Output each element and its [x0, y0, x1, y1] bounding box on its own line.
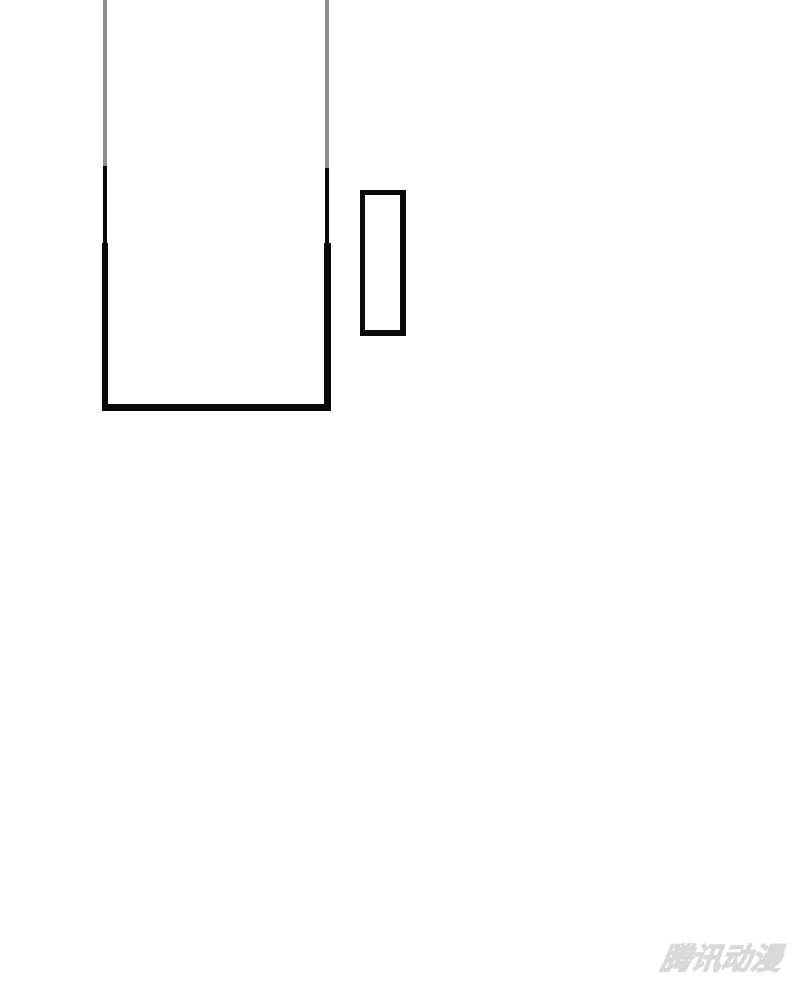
- large-panel-border-right-faded: [325, 0, 329, 168]
- comic-panel-small: [360, 190, 406, 336]
- large-panel-border-lower: [102, 243, 331, 411]
- large-panel-border-left-faded: [103, 0, 107, 166]
- large-panel-border-left: [103, 166, 107, 243]
- tencent-comics-watermark: 腾讯动漫: [658, 941, 799, 979]
- comic-page: 腾讯动漫: [0, 0, 800, 987]
- large-panel-border-right: [325, 168, 329, 243]
